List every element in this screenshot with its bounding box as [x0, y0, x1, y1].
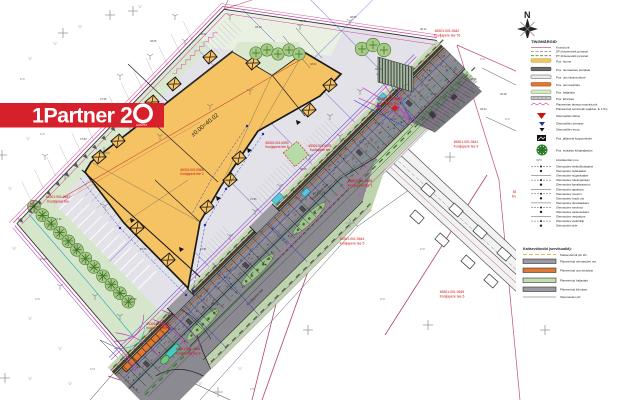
svg-text:48.28: 48.28	[500, 92, 507, 96]
svg-text:47.81: 47.81	[200, 247, 207, 251]
svg-text:Pos. jäätmete kogumiskoht: Pos. jäätmete kogumiskoht	[556, 137, 592, 141]
svg-text:48.12: 48.12	[420, 27, 427, 31]
svg-text:48.52: 48.52	[310, 62, 317, 66]
svg-text:48.40: 48.40	[430, 92, 437, 96]
svg-text:47.80: 47.80	[80, 137, 87, 141]
svg-text:Planeeritav tänava maa-ala pii: Planeeritav tänava maa-ala piir	[556, 103, 597, 107]
svg-text:Pos. kõnnitee: Pos. kõnnitee	[556, 97, 575, 101]
svg-text:47.40: 47.40	[210, 307, 217, 311]
svg-text:47.8: 47.8	[90, 368, 95, 371]
svg-text:Olemasolev piir: Olemasolev piir	[560, 295, 581, 299]
svg-text:Planeeritud servituudi vajadus: Planeeritud servituudi vajadus, lk 1.5m	[556, 107, 608, 111]
svg-text:Kooljapere tee 76: Kooljapere tee 76	[434, 34, 461, 38]
svg-text:47.8: 47.8	[380, 298, 385, 301]
svg-text:Pos. haljasala: Pos. haljasala	[556, 91, 575, 95]
svg-text:Olemasolev servituut: Olemasolev servituut	[556, 205, 583, 209]
svg-text:47.8: 47.8	[420, 248, 425, 251]
svg-text:Olemasolev sidekaabel: Olemasolev sidekaabel	[556, 169, 586, 173]
svg-text:Kooljapere tee 2: Kooljapere tee 2	[180, 172, 203, 176]
svg-text:Kooljapere tee 9: Kooljapere tee 9	[454, 145, 479, 149]
svg-text:47.95: 47.95	[100, 97, 107, 101]
svg-text:Kooljapere tee 4: Kooljapere tee 4	[146, 326, 169, 330]
svg-text:65301:001:0644: 65301:001:0644	[340, 237, 365, 241]
svg-text:Kaitsevööndid (servituudid):: Kaitsevööndid (servituudid):	[523, 247, 572, 251]
svg-text:1Partner: 1Partner	[32, 104, 116, 128]
svg-text:47.30: 47.30	[130, 297, 137, 301]
svg-text:47.15: 47.15	[170, 327, 177, 331]
svg-text:48.20: 48.20	[480, 107, 487, 111]
svg-text:Olemasolev sadeveekaev: Olemasolev sadeveekaev	[556, 210, 590, 214]
svg-text:Kooljapere tee 7a: Kooljapere tee 7a	[377, 102, 404, 106]
svg-text:47.8: 47.8	[250, 388, 255, 391]
svg-text:Olemasolev ülevaatekaev: Olemasolev ülevaatekaev	[556, 201, 590, 205]
svg-text:Olemasõlev drenaaz: Olemasõlev drenaaz	[556, 122, 584, 126]
svg-text:Olemasolev veetoru: Olemasolev veetoru	[556, 192, 582, 196]
svg-text:Olemasõlev liiklus: Olemasõlev liiklus	[556, 114, 581, 118]
svg-text:65301:001:0646: 65301:001:0646	[176, 347, 201, 351]
svg-text:Olemasolev side: Olemasolev side	[556, 224, 578, 228]
svg-text:47.42: 47.42	[55, 217, 62, 221]
svg-text:47.65: 47.65	[140, 247, 147, 251]
svg-text:Olemasolev elektriõhukaabel: Olemasolev elektriõhukaabel	[556, 165, 593, 169]
svg-text:Olemasolev gaasitoru: Olemasolev gaasitoru	[556, 187, 584, 191]
svg-text:47.95: 47.95	[250, 197, 257, 201]
svg-text:Pos. uus tee/plats: Pos. uus tee/plats	[556, 83, 580, 87]
svg-text:47.8: 47.8	[40, 133, 45, 136]
svg-text:Kooljapere tee 3: Kooljapere tee 3	[176, 352, 201, 356]
svg-text:Planeeritud kõnnitee: Planeeritud kõnnitee	[560, 287, 588, 291]
svg-text:48.30: 48.30	[390, 117, 397, 121]
svg-text:2: 2	[120, 102, 133, 128]
svg-text:Olemasolev kanalisatsioon: Olemasolev kanalisatsioon	[556, 183, 591, 187]
svg-text:Planeeritud olemasolev tee: Planeeritud olemasolev tee	[560, 259, 597, 263]
svg-text:Kooljapere tee 1: Kooljapere tee 1	[348, 184, 373, 188]
svg-text:48.80: 48.80	[350, 15, 357, 19]
svg-text:Pos. uus tänava alune: Pos. uus tänava alune	[556, 76, 586, 80]
svg-text:Planeeritud haljasala: Planeeritud haljasala	[560, 278, 588, 282]
svg-text:48.05: 48.05	[150, 39, 157, 43]
svg-text:Pos. olemasolev tee/plats: Pos. olemasolev tee/plats	[556, 68, 591, 72]
svg-text:47.8: 47.8	[480, 58, 485, 61]
svg-text:Olemasolev elektrikilp: Olemasolev elektrikilp	[556, 219, 585, 223]
svg-text:Olemasõlev truup: Olemasõlev truup	[556, 128, 580, 132]
svg-text:48.35: 48.35	[470, 77, 477, 81]
svg-text:48.44: 48.44	[375, 67, 382, 71]
svg-text:48.40: 48.40	[255, 25, 262, 29]
svg-text:65301:001:0645: 65301:001:0645	[440, 290, 465, 294]
svg-text:48.15: 48.15	[340, 147, 347, 151]
svg-text:Olemasolev truubi ots: Olemasolev truubi ots	[556, 196, 585, 200]
svg-text:47.20: 47.20	[40, 257, 47, 261]
svg-text:Planeeritud uus tee/plats: Planeeritud uus tee/plats	[560, 268, 594, 272]
svg-text:65301:001:0642: 65301:001:0642	[435, 29, 460, 33]
svg-text:×∕×: ×∕×	[536, 158, 542, 163]
svg-text:47.8: 47.8	[20, 78, 25, 81]
svg-text:N: N	[524, 10, 531, 20]
svg-text:65301:001:0640: 65301:001:0640	[378, 97, 403, 101]
svg-text:Kooljapere tee: Kooljapere tee	[47, 200, 69, 204]
svg-text:Olemasolev varjualune: Olemasolev varjualune	[556, 215, 586, 219]
svg-text:Likvideeritav puu: Likvideeritav puu	[556, 158, 579, 162]
svg-text:Kooljapere tee 6: Kooljapere tee 6	[440, 295, 465, 299]
svg-text:47.8: 47.8	[505, 118, 510, 121]
svg-text:Pos. istutatav kõrghaljastus: Pos. istutatav kõrghaljastus	[556, 149, 593, 153]
svg-text:Kooljapere tee: Kooljapere tee	[310, 148, 331, 152]
svg-text:Kooljapere tee 8: Kooljapere tee 8	[265, 145, 288, 149]
svg-text:65301:001:0648: 65301:001:0648	[348, 179, 373, 183]
svg-text:Pos. hoone: Pos. hoone	[556, 59, 572, 63]
svg-text:TINGMÄRGID: TINGMÄRGID	[531, 39, 557, 44]
svg-text:Olemasolev tuletorjekraan: Olemasolev tuletorjekraan	[556, 178, 590, 182]
svg-text:48.05: 48.05	[300, 167, 307, 171]
svg-text:Olemasolev sügavkaabel: Olemasolev sügavkaabel	[556, 174, 589, 178]
svg-text:65301:001:0641: 65301:001:0641	[454, 140, 479, 144]
svg-text:47.8: 47.8	[35, 298, 40, 301]
svg-text:48.61: 48.61	[300, 19, 307, 23]
svg-text:48.22: 48.22	[200, 32, 207, 36]
svg-text:Kaitsevööndi piir 2m: Kaitsevööndi piir 2m	[560, 253, 588, 257]
svg-text:65301:001:0647: 65301:001:0647	[46, 195, 71, 199]
svg-text:PT ühisveevärk ja kanal.: PT ühisveevärk ja kanal.	[556, 54, 589, 58]
svg-text:AASTAT: AASTAT	[136, 123, 147, 127]
svg-text:Kooljapere tee 5: Kooljapere tee 5	[340, 242, 365, 246]
svg-text:47.8: 47.8	[18, 218, 23, 221]
